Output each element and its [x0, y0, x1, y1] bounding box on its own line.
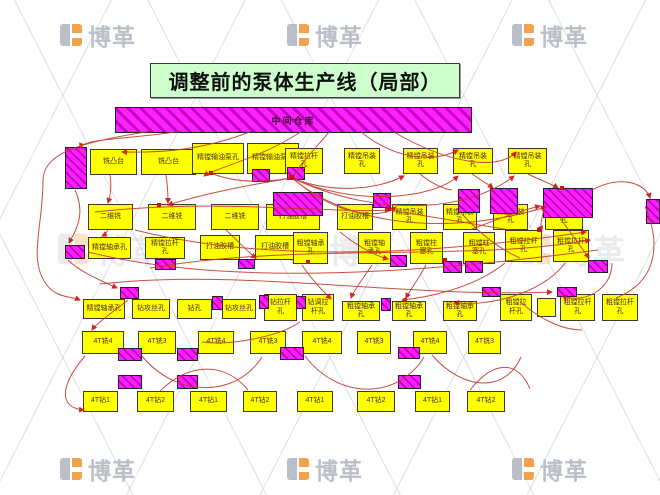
spaghetti-diagram-canvas: 博革 博革 博革 博革 博革 博革 博革 博革 博革 调整前的泵体生产线（局部）…	[0, 0, 660, 495]
flow-arrows-layer	[0, 0, 660, 495]
